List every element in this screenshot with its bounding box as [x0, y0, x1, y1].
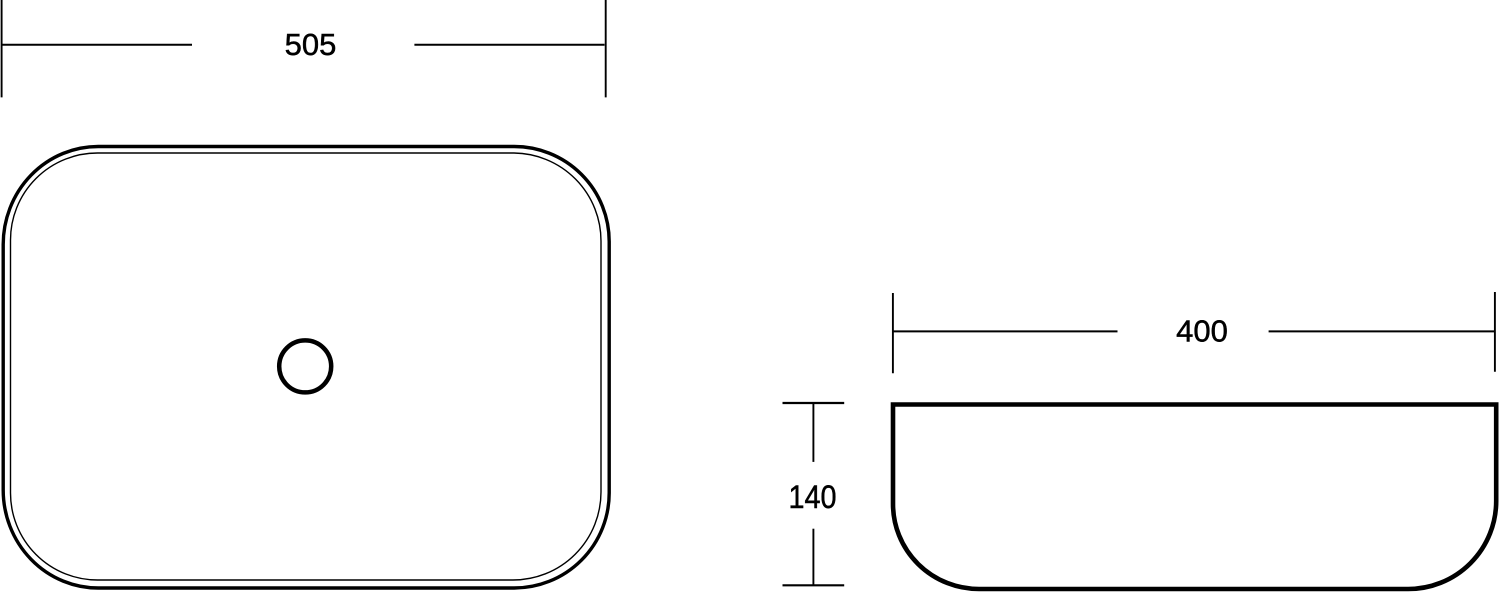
svg-text:505: 505 [285, 27, 337, 62]
svg-text:140: 140 [789, 479, 837, 515]
svg-text:400: 400 [1176, 314, 1228, 349]
